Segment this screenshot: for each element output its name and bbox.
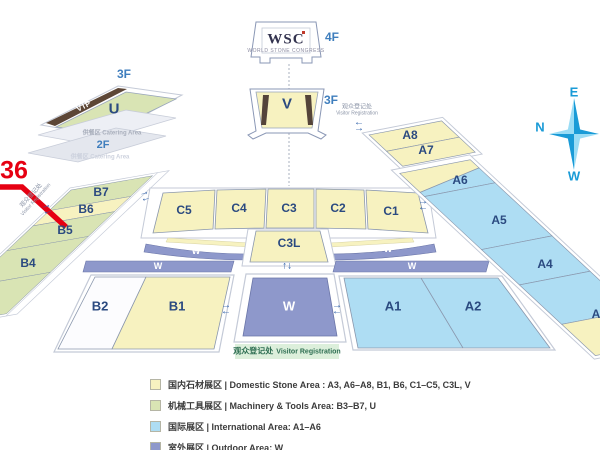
walkway-w-bar-right: W [408, 261, 417, 271]
exhibition-floorplan: WSC WORLD STONE CONGRESS 4F V 3F 3F U VI… [0, 0, 600, 450]
up-down-arrow-icon: ↑↓ [282, 261, 292, 272]
hall-c2-label: C2 [330, 201, 345, 215]
floor-label-2f: 2F [97, 139, 110, 151]
hall-b6-label: B6 [78, 202, 93, 216]
compass-rose [549, 98, 599, 170]
hall-a4-label: A4 [537, 257, 552, 271]
legend-label-machinery: 机械工具展区 | Machinery & Tools Area: B3–B7, … [168, 399, 376, 412]
hall-c3-label: C3 [281, 201, 296, 215]
hall-b7-label: B7 [93, 185, 108, 199]
legend-label-domestic: 国内石材展区 | Domestic Stone Area : A3, A6–A8… [168, 378, 471, 391]
legend-row-outdoor: 室外展区 | Outdoor Area: W [150, 441, 471, 450]
compass-e-label: E [570, 85, 579, 100]
compass-n-label: N [535, 120, 544, 135]
hall-c3l-label: C3L [278, 236, 301, 250]
w-outdoor-square-label: W [283, 299, 295, 314]
legend: 国内石材展区 | Domestic Stone Area : A3, A6–A8… [150, 378, 471, 450]
registration-label-top: 观众登记处 Visitor Registration [336, 105, 378, 118]
legend-label-international: 国际展区 | International Area: A1–A6 [168, 420, 321, 433]
hall-a8-label: A8 [402, 128, 417, 142]
floor-label-4f: 4F [325, 30, 339, 44]
hall-c5-label: C5 [176, 203, 191, 217]
hall-a1-label: A1 [385, 299, 402, 314]
legend-row-machinery: 机械工具展区 | Machinery & Tools Area: B3–B7, … [150, 399, 471, 411]
catering-label-top: 供餐区 Catering Area [83, 128, 142, 137]
hall-a2-label: A2 [465, 299, 482, 314]
walkway-w-bar-left: W [154, 261, 163, 271]
wsc-logo: WSC [267, 32, 304, 49]
booth-callout-36: 36 [0, 157, 28, 186]
hall-a7-label: A7 [418, 143, 433, 157]
legend-swatch-machinery [150, 400, 161, 411]
walkway-w-curve-right: W [384, 244, 393, 254]
catering-label-bottom: 供餐区 Catering Area [71, 152, 130, 161]
legend-swatch-domestic [150, 379, 161, 390]
hall-c1-label: C1 [383, 204, 398, 218]
legend-swatch-outdoor [150, 442, 161, 450]
hall-b4-label: B4 [20, 256, 35, 270]
registration-label-bottom: 观众登记处Visitor Registration [233, 346, 340, 357]
hall-u-label: U [109, 101, 120, 118]
wsc-tagline: WORLD STONE CONGRESS [247, 48, 324, 54]
legend-row-domestic: 国内石材展区 | Domestic Stone Area : A3, A6–A8… [150, 378, 471, 390]
hall-v-label: V [282, 96, 292, 113]
two-way-arrow-icon: →← [418, 199, 428, 211]
legend-label-outdoor: 室外展区 | Outdoor Area: W [168, 441, 283, 450]
floor-label-3f-u: 3F [117, 67, 131, 81]
legend-row-international: 国际展区 | International Area: A1–A6 [150, 420, 471, 432]
hall-a3-partial-label: A [592, 307, 600, 321]
legend-swatch-international [150, 421, 161, 432]
b1-b2-block [54, 275, 234, 352]
hall-a6-label: A6 [452, 173, 467, 187]
hall-b1-label: B1 [169, 299, 186, 314]
two-way-arrow-icon: →← [332, 303, 342, 315]
hall-c4-label: C4 [231, 201, 246, 215]
compass-w-label: W [568, 169, 580, 184]
hall-a5-label: A5 [491, 213, 506, 227]
walkway-w-curve-left: W [192, 246, 201, 256]
hall-b2-label: B2 [92, 299, 109, 314]
two-way-arrow-icon: →← [221, 303, 231, 315]
two-way-arrow-icon: ←→ [354, 120, 364, 132]
hall-b5-label: B5 [57, 223, 72, 237]
